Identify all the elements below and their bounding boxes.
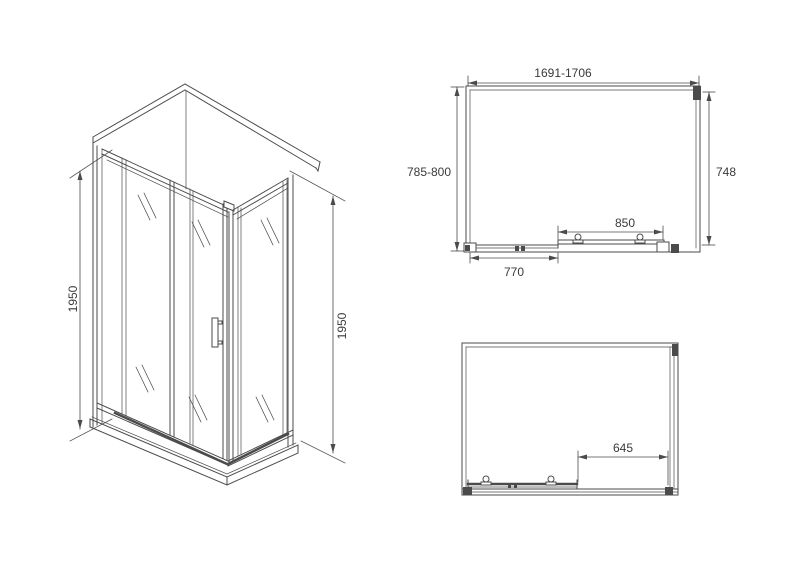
iso-height-right-label: 1950 — [335, 312, 349, 339]
iso-left-wall-profile — [93, 143, 102, 427]
iso-right-glass-panel — [238, 180, 287, 456]
plan-top-dimension-overall-width: 1691-1706 — [468, 66, 699, 86]
iso-top-frame — [93, 84, 320, 189]
iso-front-glass-panels — [122, 158, 227, 460]
plan-bottom-frame — [462, 343, 678, 495]
iso-view: 1950 1950 — [66, 84, 349, 485]
iso-corner-post — [224, 201, 234, 463]
plan-top-dimension-fixed-panel: 770 — [470, 253, 558, 279]
plan-top-dimension-depth: 785-800 — [407, 87, 464, 251]
plan-bottom-sliding-door — [468, 476, 577, 489]
plan-top-frame — [466, 86, 701, 252]
plan-top-bottom-rails — [464, 234, 679, 253]
shower-enclosure-drawing: 1950 1950 — [0, 0, 800, 566]
fixed-panel-width-label: 770 — [504, 265, 524, 279]
plan-top-dimension-door: 850 — [558, 216, 663, 239]
plan-top-rollers — [573, 234, 645, 243]
plan-view-top: 1691-1706 785-800 748 850 — [407, 66, 736, 279]
iso-front-top-rail — [102, 149, 228, 217]
plan-bottom-track — [462, 487, 678, 495]
iso-right-wall-profile — [288, 175, 293, 447]
side-panel-width-label: 748 — [716, 165, 736, 179]
opening-width-label: 645 — [613, 441, 633, 455]
plan-view-bottom: 645 — [462, 343, 678, 495]
door-width-label: 850 — [615, 216, 635, 230]
plan-top-wall-profile — [693, 86, 701, 100]
iso-door-handle — [212, 318, 222, 347]
iso-height-left-label: 1950 — [66, 285, 80, 312]
overall-width-label: 1691-1706 — [534, 66, 592, 80]
plan-bottom-dimension-opening: 645 — [578, 441, 668, 485]
iso-base-tray — [90, 417, 298, 485]
plan-top-dimension-side-panel: 748 — [702, 92, 736, 245]
depth-label: 785-800 — [407, 165, 451, 179]
iso-glass-hatch-marks — [136, 193, 279, 422]
iso-dimension-height-left: 1950 — [66, 150, 112, 441]
technical-drawing-page: 1950 1950 — [0, 0, 800, 566]
iso-dimension-height-right: 1950 — [290, 171, 349, 463]
